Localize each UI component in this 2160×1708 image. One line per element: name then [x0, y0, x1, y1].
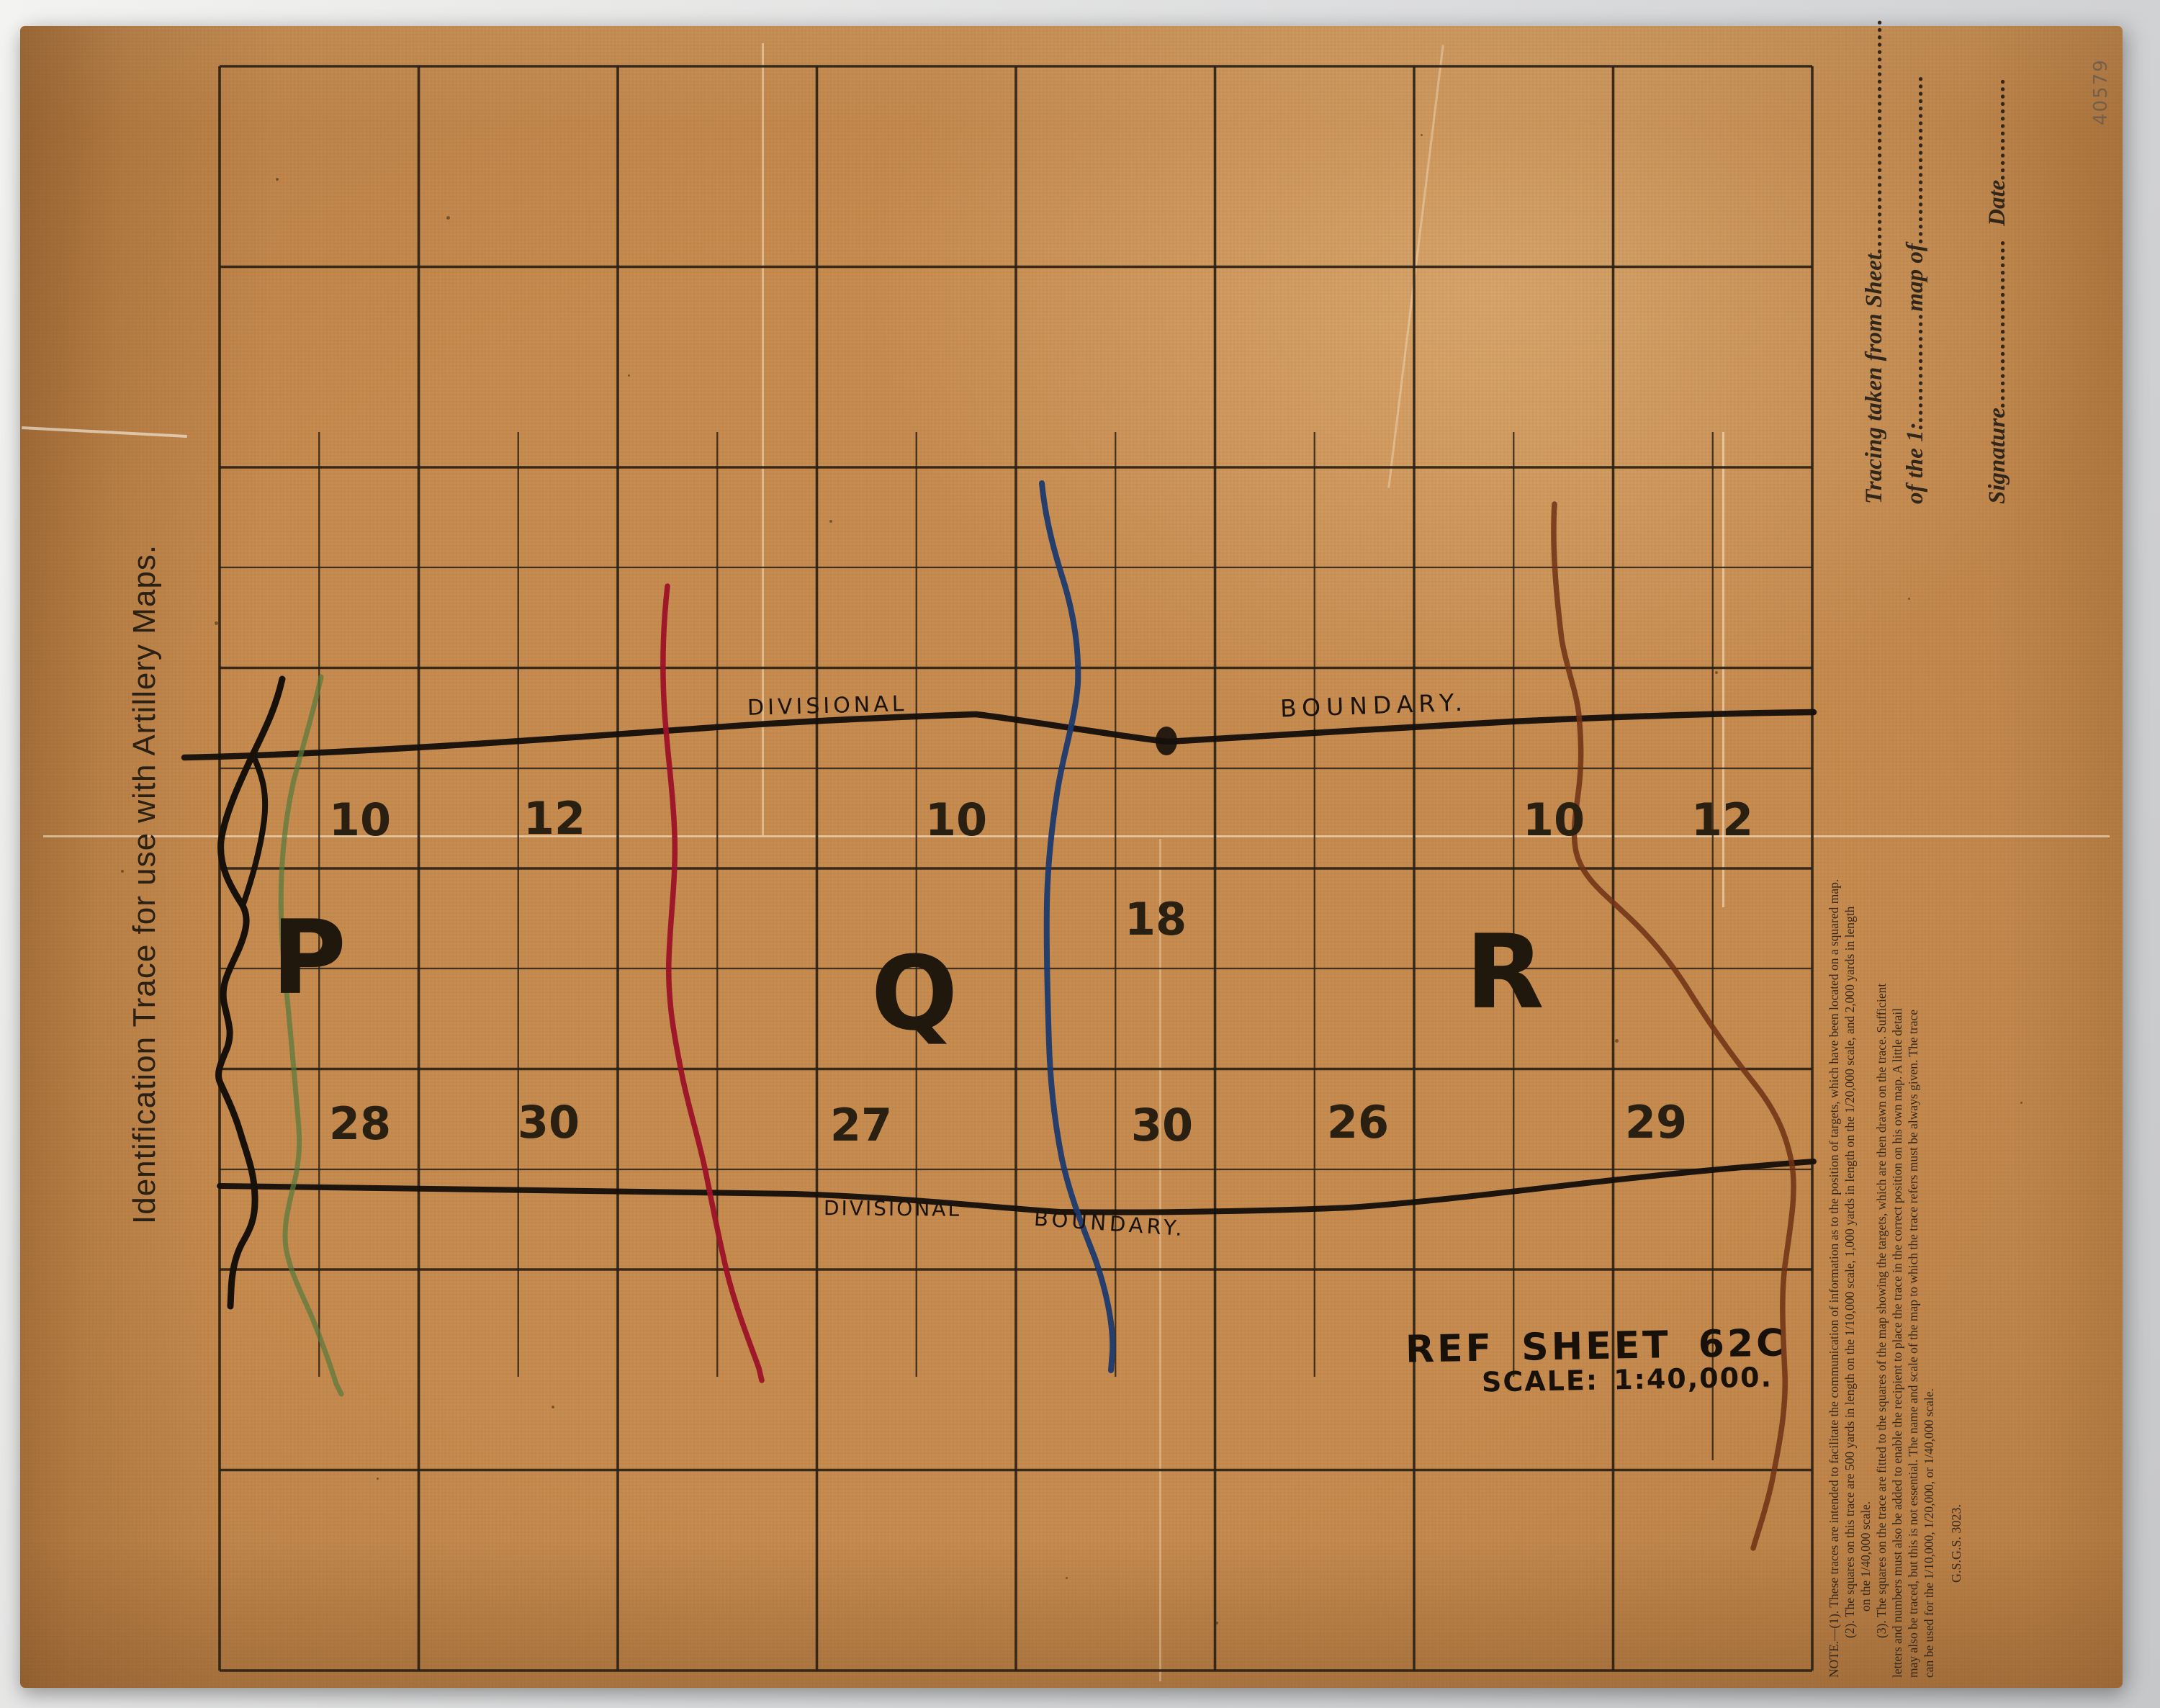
- paper-speck: [1615, 1039, 1619, 1043]
- paper-speck: [276, 178, 279, 181]
- handwritten-serial-number: 40579: [2090, 39, 2112, 125]
- paper-speck: [446, 216, 450, 220]
- blue-trace: [1042, 483, 1112, 1370]
- grid-square-number: 10: [329, 794, 391, 846]
- map-of-fill-in-line: .......................: [1902, 73, 1928, 243]
- printed-note-block: NOTE.—(1). These traces are intended to …: [1826, 670, 1964, 1678]
- boundary-label: DIVISIONAL: [747, 691, 908, 721]
- map-scale-line: of the 1:...............map of..........…: [1895, 14, 1936, 504]
- paper-speck: [1421, 134, 1423, 136]
- black-trace-branch: [243, 755, 265, 906]
- date-fill-in-line: ..............: [1984, 76, 2010, 180]
- paper-speck: [377, 1478, 379, 1480]
- paper-speck: [829, 520, 832, 523]
- paper-speck: [2020, 1102, 2022, 1104]
- signature-date-line: Signature....................... Date...…: [1936, 14, 2018, 504]
- date-label: Date: [1984, 180, 2010, 226]
- paper-speck: [628, 374, 630, 377]
- grid-square-number: 28: [329, 1097, 391, 1150]
- note-line: (3). The squares on the trace are fitted…: [1873, 670, 1889, 1638]
- note-line: on the 1/40,000 scale.: [1858, 670, 1873, 1612]
- tracing-header-block: Tracing taken from Sheet................…: [1854, 14, 2018, 504]
- note-line: (2). The squares on this trace are 500 y…: [1842, 670, 1858, 1638]
- grid-square-letter: P: [271, 899, 346, 1017]
- boundary-label: DIVISIONAL: [824, 1196, 961, 1221]
- map-of-label: map of: [1902, 243, 1928, 311]
- ref-annotation: SCALE: 1:40,000.: [1482, 1361, 1773, 1398]
- scale-fill-in-line: ...............: [1902, 312, 1928, 423]
- grid-square-letter: Q: [871, 935, 958, 1053]
- tracing-from-sheet-line: Tracing taken from Sheet................…: [1854, 14, 1895, 504]
- paper-speck: [121, 870, 124, 873]
- grid-square-number: 10: [1523, 794, 1585, 846]
- sheet-title: Identification Trace for use with Artill…: [127, 533, 163, 1224]
- tracing-from-sheet-label: Tracing taken from Sheet: [1861, 253, 1887, 504]
- note-paragraphs: NOTE.—(1). These traces are intended to …: [1826, 670, 1937, 1678]
- grid-square-number: 30: [1131, 1099, 1193, 1151]
- paper-speck: [215, 621, 218, 625]
- signature-fill-in-line: .......................: [1984, 238, 2010, 408]
- paper-speck: [1715, 671, 1718, 674]
- signature-label: Signature: [1984, 408, 2010, 504]
- grid-square-letter: R: [1465, 913, 1544, 1032]
- note-line: may also be traced, but this is not esse…: [1905, 670, 1921, 1678]
- upper-divisional-boundary-line: [184, 712, 1814, 758]
- gsgs-imprint: G.S.G.S. 3023.: [1948, 670, 1964, 1583]
- note-line: letters and numbers must also be added t…: [1889, 670, 1905, 1678]
- grid-square-number: 12: [523, 792, 585, 845]
- note-line: can be used for the 1/10,000, 1/20,000, …: [1921, 670, 1937, 1678]
- grid-square-number: 18: [1125, 893, 1187, 945]
- grid-square-number: 29: [1625, 1096, 1687, 1149]
- paper-speck: [1908, 598, 1910, 600]
- green-trace: [281, 677, 341, 1394]
- paper-speck: [552, 1406, 554, 1408]
- grid-square-number: 10: [925, 794, 987, 846]
- grid-square-number: 12: [1691, 794, 1753, 846]
- ink-blot: [1156, 727, 1177, 755]
- photographed-trace-sheet: Identification Trace for use with Artill…: [0, 0, 2160, 1708]
- sheet-fill-in-line: ................................: [1861, 17, 1887, 253]
- note-line: NOTE.—(1). These traces are intended to …: [1826, 670, 1842, 1678]
- grid-square-number: 27: [830, 1099, 892, 1151]
- grid-square-number: 26: [1327, 1096, 1389, 1149]
- grid-square-number: 30: [518, 1096, 580, 1149]
- paper-speck: [1066, 1577, 1068, 1579]
- paper-speck: [1215, 1622, 1218, 1624]
- of-the-scale-label: of the 1:: [1902, 422, 1928, 504]
